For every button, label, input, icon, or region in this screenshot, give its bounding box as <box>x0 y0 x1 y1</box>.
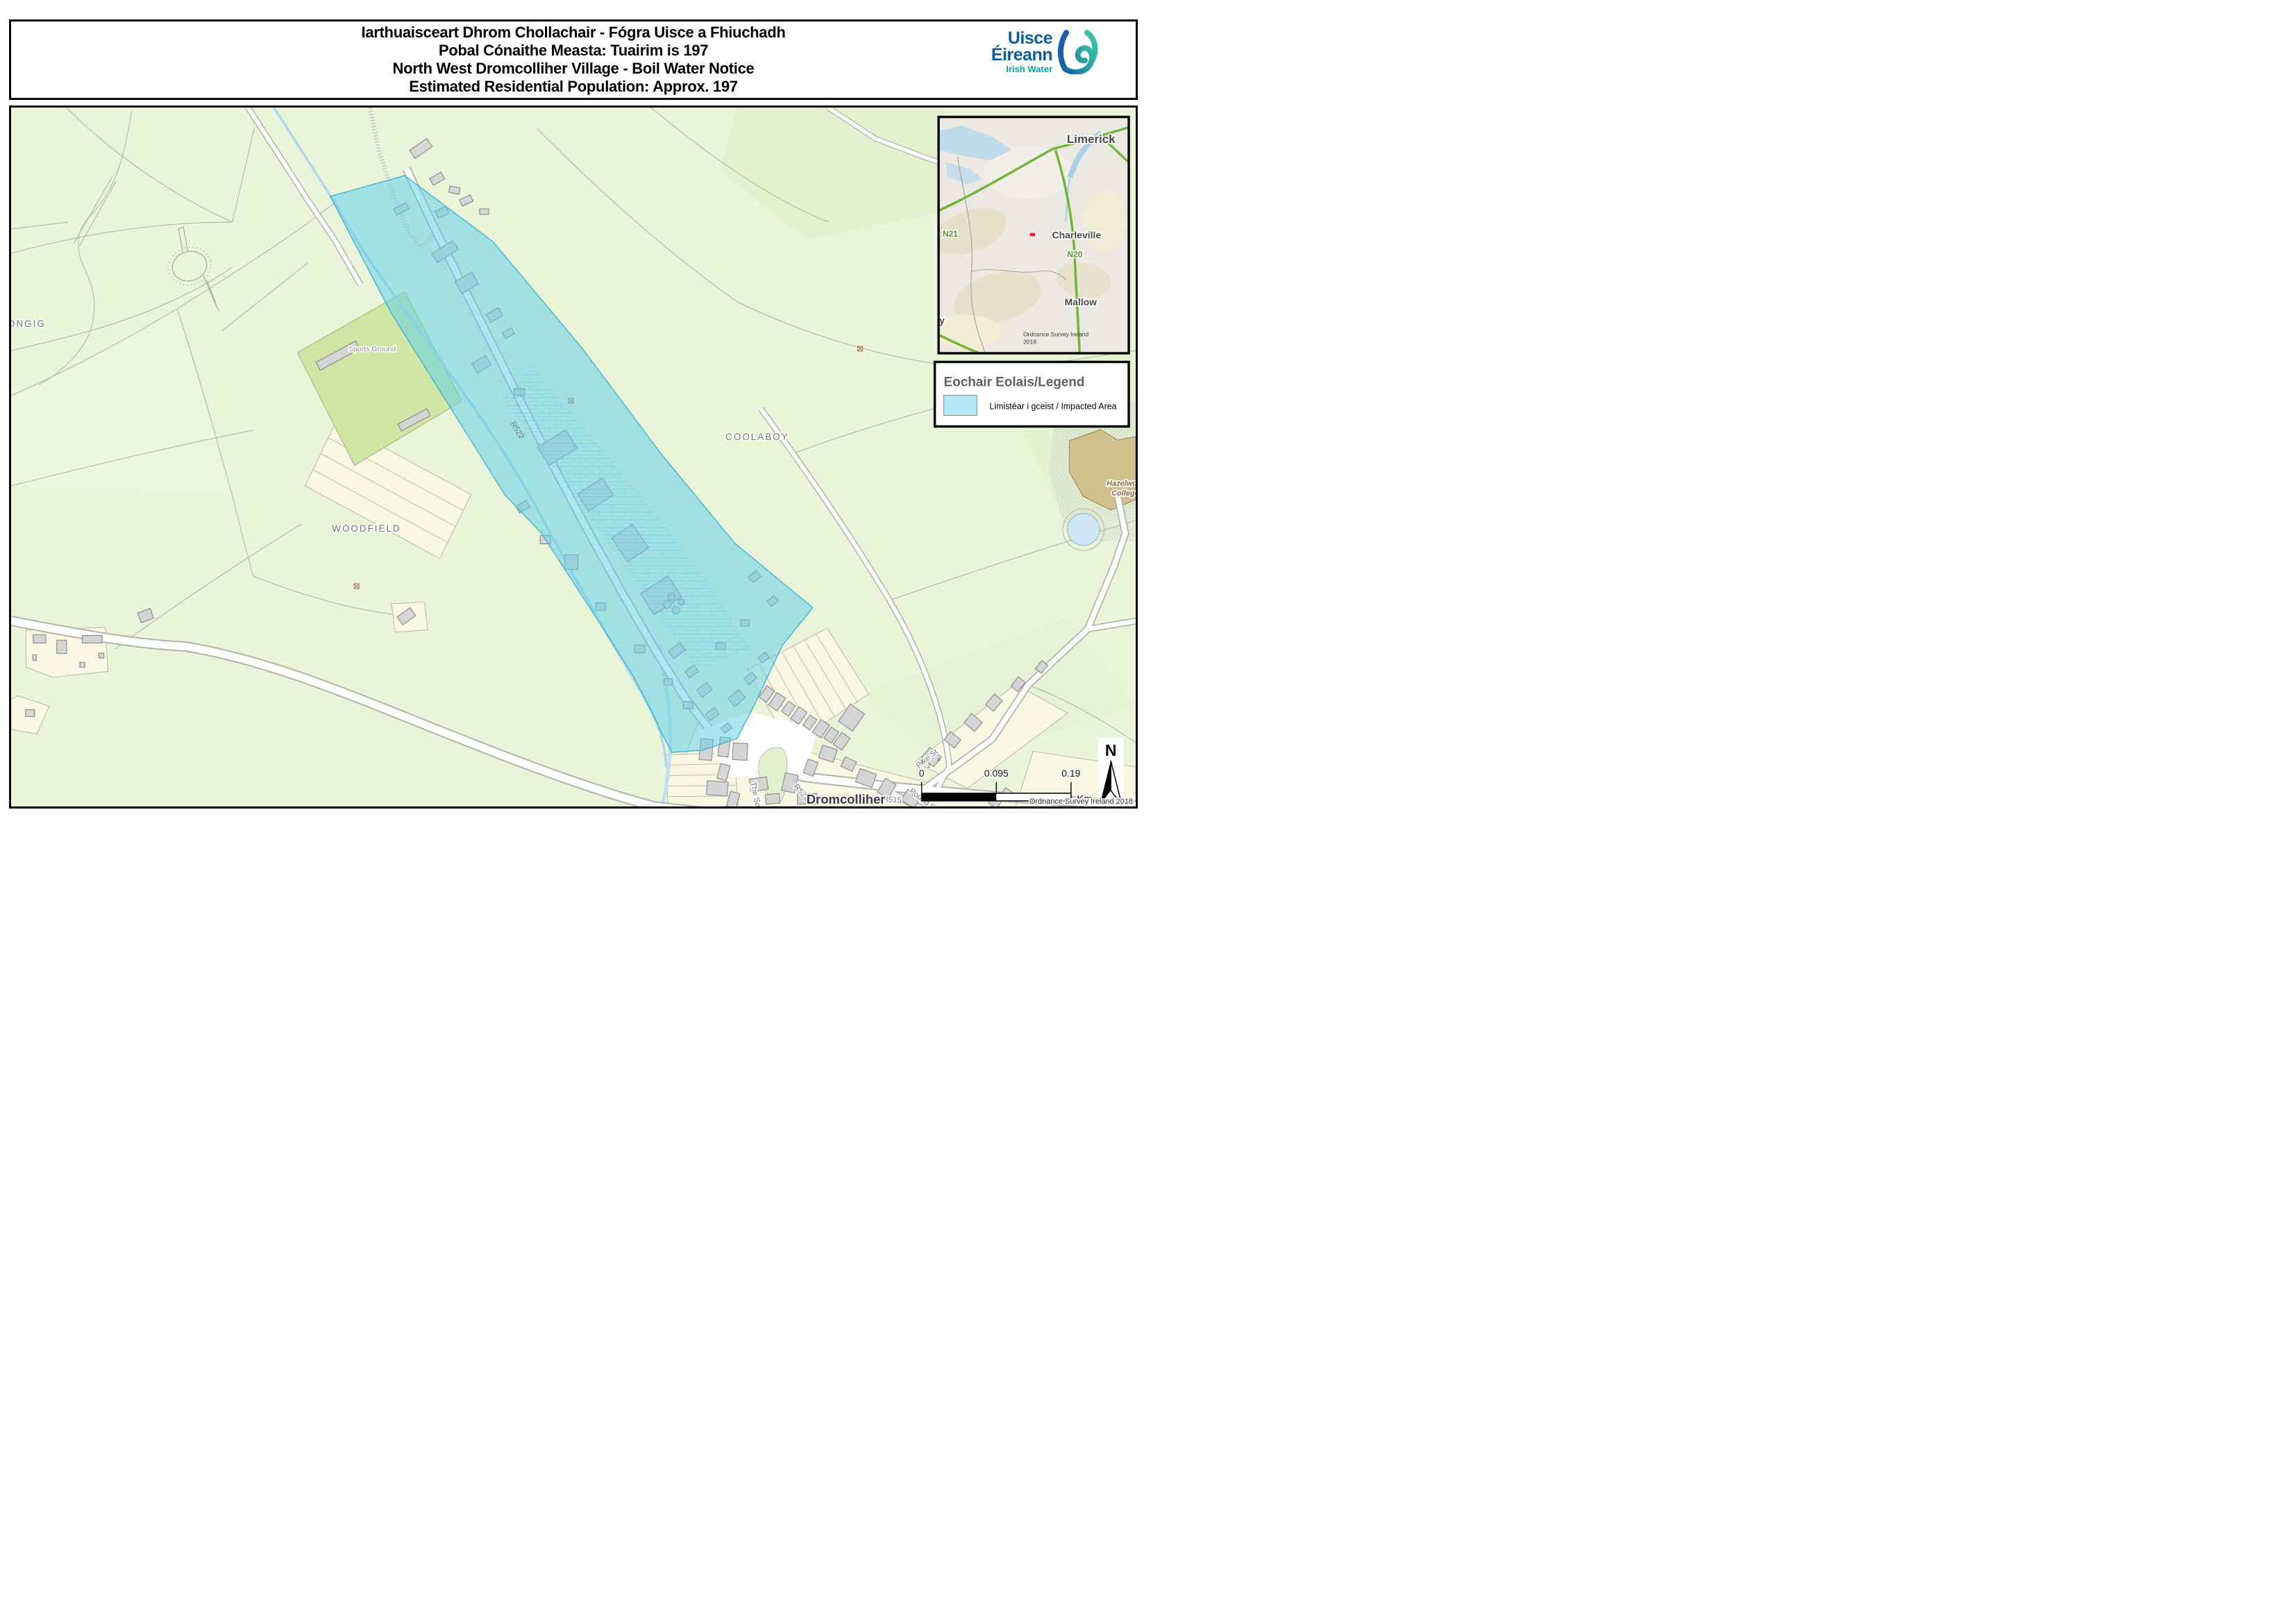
label-college-line2: College <box>1111 489 1136 498</box>
logo-subtitle: Irish Water <box>991 65 1052 74</box>
scale-tick-label-1: 0.095 <box>984 768 1009 779</box>
inset-map: Limerick Charleville Mallow N21 N20 y Or… <box>927 117 1129 354</box>
svg-text:4: 4 <box>937 756 940 763</box>
water-ribbon-icon <box>1057 28 1100 74</box>
logo-name-line1: Uisce <box>991 30 1052 46</box>
inset-label-n21: N21 <box>943 229 958 239</box>
inset-label-charleville: Charleville <box>1052 229 1102 240</box>
page-title: Iarthuaisceart Dhrom Chollachair - Fógra… <box>11 24 1136 96</box>
label-dromcolliher: Dromcolliher <box>807 792 886 806</box>
svg-text:1: 1 <box>920 759 923 765</box>
irish-water-logo: Uisce Éireann Irish Water <box>991 28 1100 74</box>
inset-label-mallow: Mallow <box>1065 296 1098 307</box>
inset-label-partial: y <box>939 314 945 325</box>
logo-name-line2: Éireann <box>991 46 1052 63</box>
legend-swatch-impacted <box>944 396 977 416</box>
legend-impacted-label: Limistéar i gceist / Impacted Area <box>989 401 1116 411</box>
svg-text:2: 2 <box>927 763 930 769</box>
label-woodfield: WOODFIELD <box>332 523 401 534</box>
north-arrow: N <box>1098 738 1124 806</box>
pond <box>1068 514 1100 545</box>
label-college-line1: Hazelwood <box>1107 480 1136 488</box>
scale-tick-label-0: 0 <box>919 768 925 779</box>
legend-title: Eochair Eolais/Legend <box>944 375 1085 389</box>
location-marker <box>1029 232 1035 237</box>
title-line-irish-1: Iarthuaisceart Dhrom Chollachair - Fógra… <box>11 24 1136 42</box>
map-canvas: ONGIG WOODFIELD COOLABOY Sports Ground R… <box>11 108 1136 806</box>
scale-tick-label-2: 0.19 <box>1061 768 1080 779</box>
title-line-english-2: Estimated Residential Population: Approx… <box>11 78 1136 96</box>
title-line-english-1: North West Dromcolliher Village - Boil W… <box>11 60 1136 78</box>
label-coolaboy: COOLABOY <box>725 432 789 442</box>
legend-box: Eochair Eolais/Legend Limistéar i gceist… <box>935 362 1129 427</box>
map-document: Iarthuaisceart Dhrom Chollachair - Fógra… <box>0 0 1147 812</box>
north-label: N <box>1105 741 1117 759</box>
inset-attribution-line1: Ordnance Survey Ireland <box>1023 330 1088 337</box>
label-townland-left: ONGIG <box>11 319 46 329</box>
label-sports-ground: Sports Ground <box>348 346 396 353</box>
map-container: ONGIG WOODFIELD COOLABOY Sports Ground R… <box>9 105 1138 809</box>
map-attribution: Ordnance Survey Ireland 2018 <box>1029 797 1133 806</box>
scale-bar-filled-half <box>922 793 997 801</box>
title-bar: Iarthuaisceart Dhrom Chollachair - Fógra… <box>9 19 1138 100</box>
inset-label-limerick: Limerick <box>1067 133 1116 146</box>
title-line-irish-2: Pobal Cónaithe Measta: Tuairim is 197 <box>11 42 1136 60</box>
inset-label-n20: N20 <box>1067 249 1082 259</box>
inset-attribution-line2: 2018 <box>1023 338 1036 345</box>
